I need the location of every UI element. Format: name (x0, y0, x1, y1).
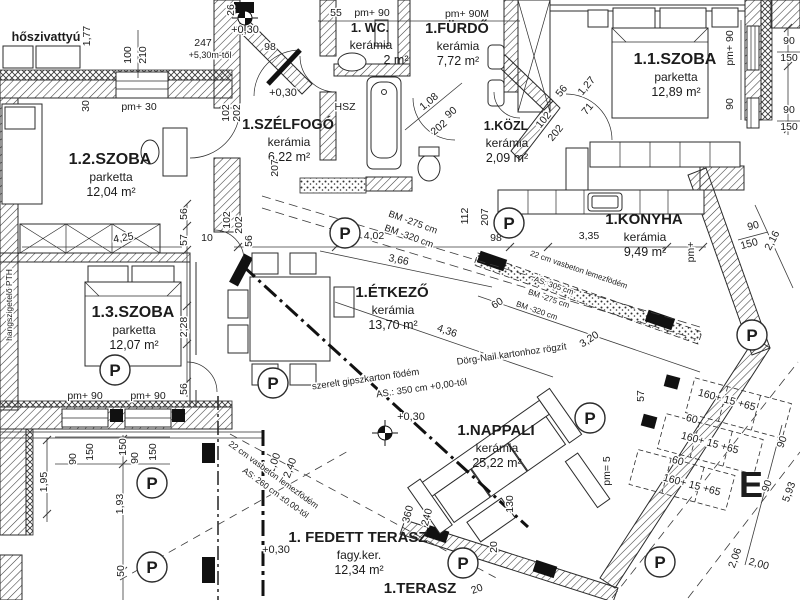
dimension-text: pm+ 90 (130, 390, 165, 402)
dimension-text: pm+ 90 (354, 7, 389, 19)
dimension-text: 202 (233, 216, 245, 234)
level-mark: +5,30m-től (189, 50, 232, 60)
dimension-text: 202 (429, 117, 450, 138)
dimension-text: 3,20 (578, 329, 602, 350)
room-label-terasz: 1.TERASZ (384, 580, 457, 597)
room-label-konyha: 1.KONYHA (605, 211, 683, 228)
electrical-p-symbol: P (645, 547, 675, 577)
level-mark: +0,30 (262, 544, 290, 556)
electrical-p-symbol: P (137, 468, 167, 498)
dimension-text: pm+ 30 (121, 101, 156, 113)
dimension-text: 26 (225, 4, 237, 16)
dimension-text: 57 (178, 234, 190, 246)
electrical-p-symbol: P (137, 552, 167, 582)
dimension-text: pm+ 90 (724, 30, 736, 65)
dimension-text: 150 (780, 52, 798, 64)
p-symbol-letter: P (146, 474, 157, 493)
room-finish-szoba12: parketta (89, 170, 133, 184)
room-area-szoba13: 12,07 m² (109, 338, 158, 352)
dimension-text: 1,08 (417, 90, 440, 112)
dimension-text: 1,27 (576, 74, 598, 97)
dimension-text: 2,06 (726, 546, 744, 569)
electrical-p-symbol: P (575, 403, 605, 433)
dimension-text: 112 (459, 207, 471, 224)
p-symbol-letter: P (746, 326, 757, 345)
room-finish-nappali: kerámia (476, 441, 519, 455)
dimension-text: 210 (137, 46, 149, 64)
dimension-text: 5,93 (780, 480, 798, 503)
room-label-szoba13: 1.3.SZOBA (92, 304, 175, 321)
electrical-p-symbol: P (258, 368, 288, 398)
room-label-hoszivattyu: hőszivattyú (12, 30, 81, 44)
electrical-p-symbol: P (100, 355, 130, 385)
dimension-text: 150 (117, 438, 129, 456)
dimension-text: 2,28 (178, 317, 190, 338)
room-finish-szoba11: parketta (654, 70, 698, 84)
dimension-text: 207 (269, 159, 281, 177)
room-area-fedett_terasz: 12,34 m² (334, 563, 383, 577)
room-label-fedett_terasz: 1. FEDETT TERASZ (288, 529, 427, 546)
dimension-text: 90 (775, 434, 790, 449)
dimension-text: 150 (84, 443, 96, 461)
electrical-p-symbol: P (448, 548, 478, 578)
dimension-text: 30 (80, 100, 92, 112)
dimension-text: 57 (635, 390, 647, 402)
dimension-text: 202 (545, 122, 566, 143)
room-label-nappali: 1.NAPPALI (457, 422, 534, 439)
electrical-p-symbol: P (494, 208, 524, 238)
dimension-text: 2,00 (747, 556, 770, 573)
dimension-text: 20 (469, 581, 484, 596)
room-label-szoba12: 1.2.SZOBA (69, 151, 152, 168)
dimension-text: 90 (724, 98, 736, 110)
dimension-text: 100 (122, 46, 134, 64)
dimension-text: 55 (330, 7, 342, 19)
dimension-text: 90 (129, 452, 141, 464)
construction-note: Dörg-Nail kartonhoz rögzít (456, 341, 568, 367)
room-label-etkezo: 1.ÉTKEZŐ (355, 283, 429, 301)
level-mark: +0,30 (269, 87, 297, 99)
room-finish-szoba13: parketta (112, 323, 156, 337)
room-area-kozl: 2,09 m² (486, 151, 528, 165)
dimension-text: 3,35 (579, 230, 600, 242)
room-finish-szelfogo: kerámia (268, 135, 311, 149)
dimension-text: 50 (115, 565, 127, 577)
dimension-text: pm= 5 (601, 456, 613, 486)
dimension-text: 90 (783, 35, 795, 47)
p-symbol-letter: P (109, 361, 120, 380)
dimension-text: 56 (553, 83, 570, 100)
room-area-nappali: 25,22 m² (472, 456, 521, 470)
dimension-text: 150 (780, 121, 798, 133)
room-finish-furdo: kerámia (437, 39, 480, 53)
p-symbol-letter: P (503, 214, 514, 233)
p-symbol-letter: P (654, 553, 665, 572)
room-area-etkezo: 13,70 m² (368, 318, 417, 332)
dimension-text: 60 (489, 295, 505, 312)
dimension-text: 360 (400, 504, 416, 524)
room-label-kozl: 1.KÖZL (484, 118, 529, 133)
room-finish-wc: kerámia (350, 38, 393, 52)
dimension-text: 90 (443, 104, 460, 121)
dimension-text: pm+ 90 (67, 390, 102, 402)
dimension-text: 1,93 (114, 494, 126, 515)
dimension-text: 10 (201, 232, 213, 244)
room-finish-fedett_terasz: fagy.ker. (337, 548, 381, 562)
room-area-wc: 2 m² (384, 53, 409, 67)
dimension-text: pm+ 90M (445, 8, 489, 20)
floor-plan: hőszivattyú1.2.SZOBAparketta12,04 m²1.SZ… (0, 0, 800, 600)
room-label-wc: 1. WC. (351, 21, 389, 35)
electrical-p-symbol: P (737, 320, 767, 350)
dimension-text: HSZ (335, 101, 357, 113)
dimension-text: 56 (243, 235, 255, 247)
dimension-text: 150 (147, 443, 159, 461)
dimension-text: pm+ (685, 242, 697, 263)
dimension-text: 56 (178, 383, 190, 395)
room-label-szelfogo: 1.SZÉLFOGÓ (242, 115, 334, 133)
dimension-text: 56 (178, 208, 190, 220)
room-area-furdo: 7,72 m² (437, 54, 479, 68)
dimension-text: 1,77 (81, 26, 93, 47)
dimension-text: 202 (231, 104, 243, 122)
room-finish-etkezo: kerámia (372, 303, 415, 317)
dimension-text: 1,95 (38, 472, 50, 493)
dimension-text: 102 (221, 211, 233, 229)
dimension-text: 4,02 (364, 230, 385, 242)
room-label-szoba11: 1.1.SZOBA (634, 51, 717, 68)
electrical-p-symbol: P (330, 218, 360, 248)
p-symbol-letter: P (339, 224, 350, 243)
dimension-text: 90 (746, 219, 761, 234)
p-symbol-letter: P (267, 374, 278, 393)
room-area-konyha: 9,49 m² (624, 245, 666, 259)
dimension-text: 130 (504, 495, 516, 513)
room-finish-kozl: kerámia (486, 136, 529, 150)
p-symbol-letter: P (457, 554, 468, 573)
p-symbol-letter: P (584, 409, 595, 428)
room-label-furdo: 1.FÜRDŐ (425, 19, 489, 37)
construction-note: hangszigetelő PTH (4, 269, 14, 341)
dimension-text: 2,16 (762, 229, 782, 253)
dimension-text: 98 (264, 41, 276, 53)
dimension-text: 247 (194, 37, 212, 49)
room-area-szoba12: 12,04 m² (86, 185, 135, 199)
dimension-text: 207 (479, 208, 491, 226)
dimension-text: 20 (488, 541, 500, 553)
floor-plan-drawing: hőszivattyú1.2.SZOBAparketta12,04 m²1.SZ… (0, 0, 800, 600)
room-finish-konyha: kerámia (624, 230, 667, 244)
section-letter: E (739, 464, 763, 505)
dimension-text: 150 (739, 236, 759, 252)
level-mark: +0,30 (397, 411, 425, 423)
survey-point-marker (372, 420, 398, 446)
dimension-text: 90 (783, 104, 795, 116)
dimension-text: 60 (685, 412, 700, 427)
room-area-szoba11: 12,89 m² (651, 85, 700, 99)
dimension-text: 90 (67, 453, 79, 465)
p-symbol-letter: P (146, 558, 157, 577)
